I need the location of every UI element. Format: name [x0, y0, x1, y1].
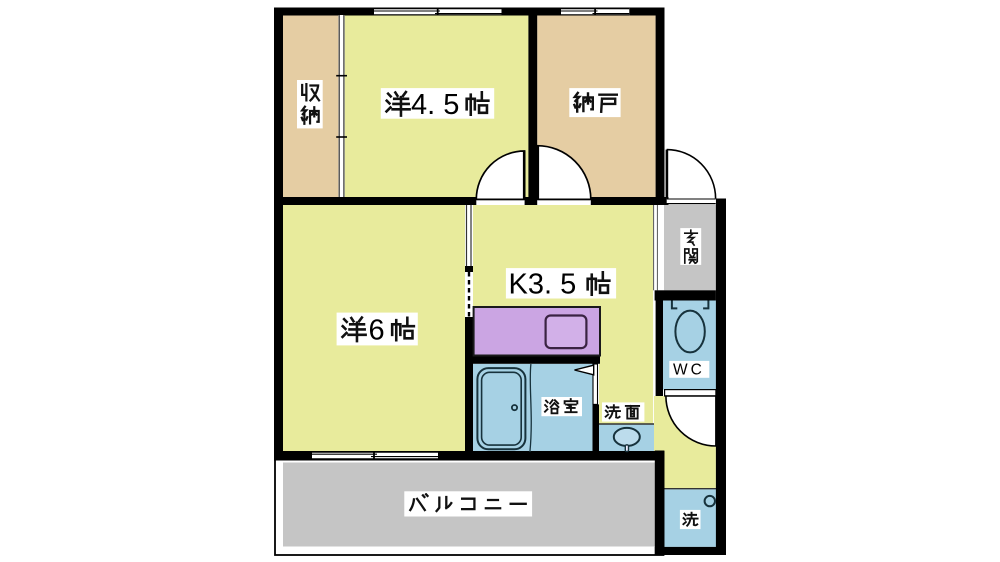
svg-text:6: 6 — [369, 315, 385, 347]
svg-text:WC: WC — [673, 362, 705, 379]
svg-text:4. 5: 4. 5 — [411, 89, 459, 121]
svg-text:K3. 5: K3. 5 — [509, 269, 577, 301]
